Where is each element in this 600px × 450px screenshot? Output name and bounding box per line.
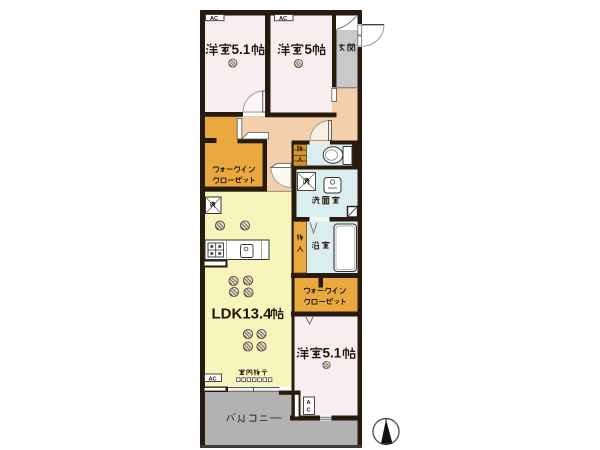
svg-text:5.1: 5.1 — [323, 346, 342, 361]
svg-text:AC: AC — [210, 16, 218, 22]
svg-text:5.1: 5.1 — [232, 42, 251, 57]
svg-text:LDK13.4: LDK13.4 — [212, 306, 273, 323]
svg-text:5: 5 — [305, 42, 313, 57]
svg-text:AC: AC — [209, 376, 217, 382]
svg-text:C: C — [307, 408, 311, 414]
svg-text:A: A — [307, 400, 311, 406]
svg-text:AC: AC — [279, 16, 287, 22]
